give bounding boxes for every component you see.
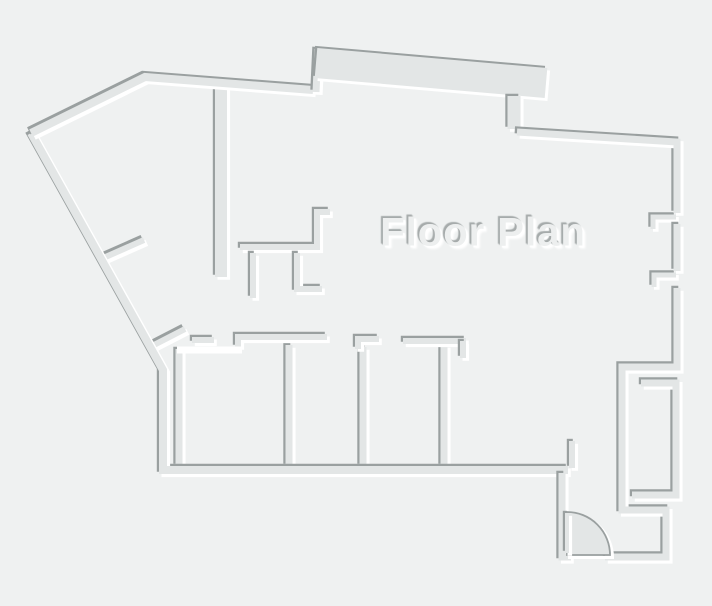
room-divider-0 (177, 347, 182, 469)
door-swing (567, 512, 613, 558)
perimeter-left-and-bottom (29, 131, 571, 473)
floor-plan-canvas: Floor Plan (0, 0, 712, 606)
kitchen-nook-upper (238, 210, 333, 250)
room-divider-1 (287, 343, 292, 469)
left-horizontal-stub (190, 338, 217, 343)
perimeter-top-right (515, 130, 680, 216)
entry-stub-upper (570, 439, 575, 471)
rooms-top-wall-west (236, 335, 330, 350)
room-divider-2 (361, 345, 366, 469)
kitchen-nook-post-a (251, 251, 256, 301)
closet-nook-right (630, 381, 679, 498)
floor-plan-drawing (0, 0, 712, 606)
column-wall-left-of-kitchen (219, 83, 224, 280)
perimeter-right-lower (603, 286, 680, 560)
perimeter-top-left-diagonal (29, 75, 316, 136)
rooms-top-wall-east-tab (461, 339, 466, 361)
floor-plan-title: Floor Plan (380, 211, 586, 256)
door-leaf (565, 511, 570, 556)
rooms-top-wall-mid (356, 337, 382, 352)
room-divider-3 (442, 343, 447, 469)
perimeter-top-thick-band (314, 61, 549, 86)
right-wall-between-windows (675, 222, 680, 274)
kitchen-nook-lower (295, 251, 325, 292)
perimeter-band-stub (512, 94, 517, 132)
